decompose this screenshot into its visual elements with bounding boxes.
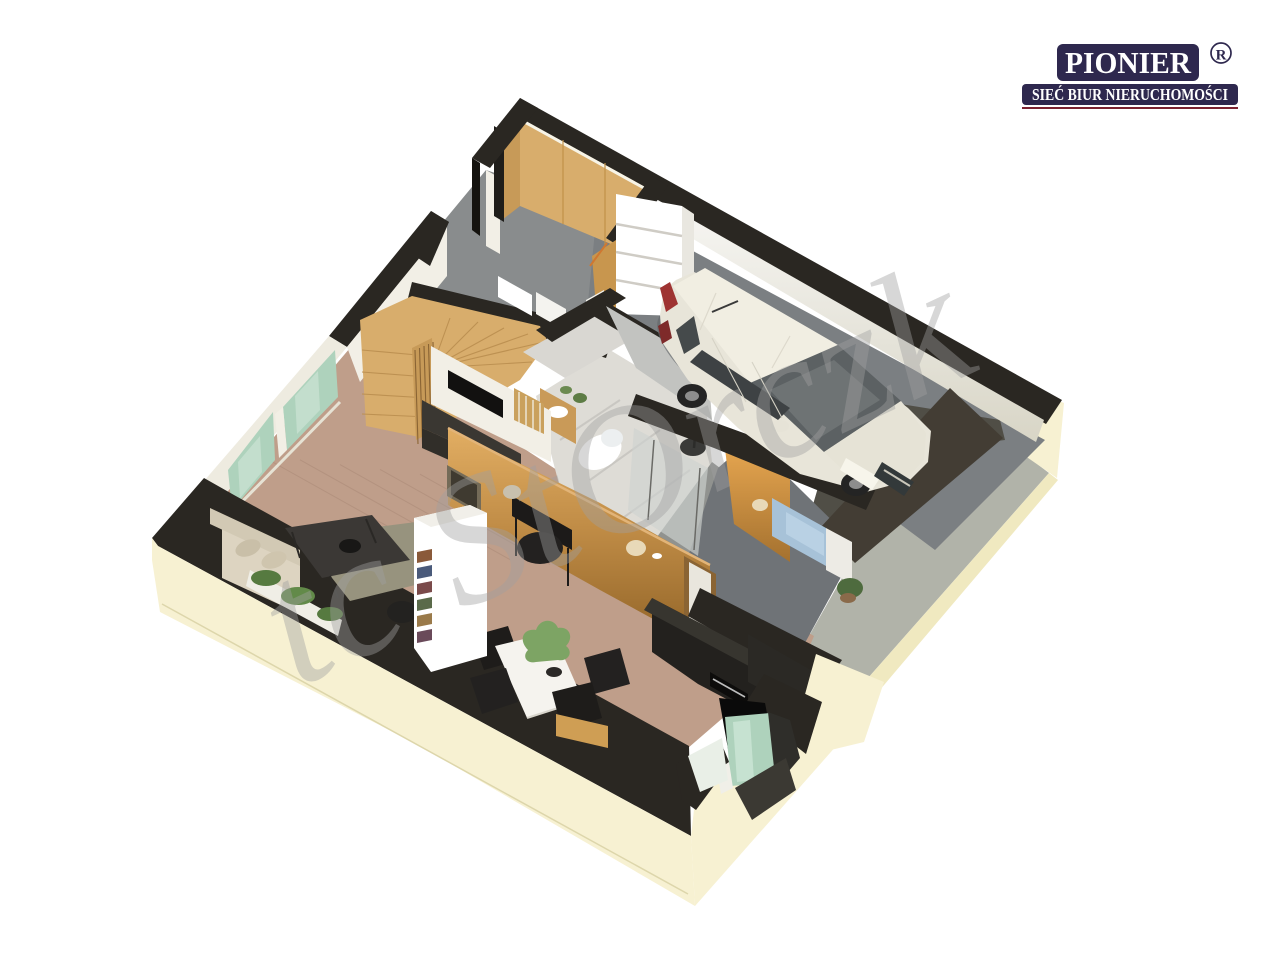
svg-text:SIEĆ BIUR NIERUCHOMOŚCI: SIEĆ BIUR NIERUCHOMOŚCI — [1032, 85, 1228, 104]
svg-text:PIONIER: PIONIER — [1065, 45, 1192, 80]
svg-text:R: R — [1216, 48, 1227, 64]
